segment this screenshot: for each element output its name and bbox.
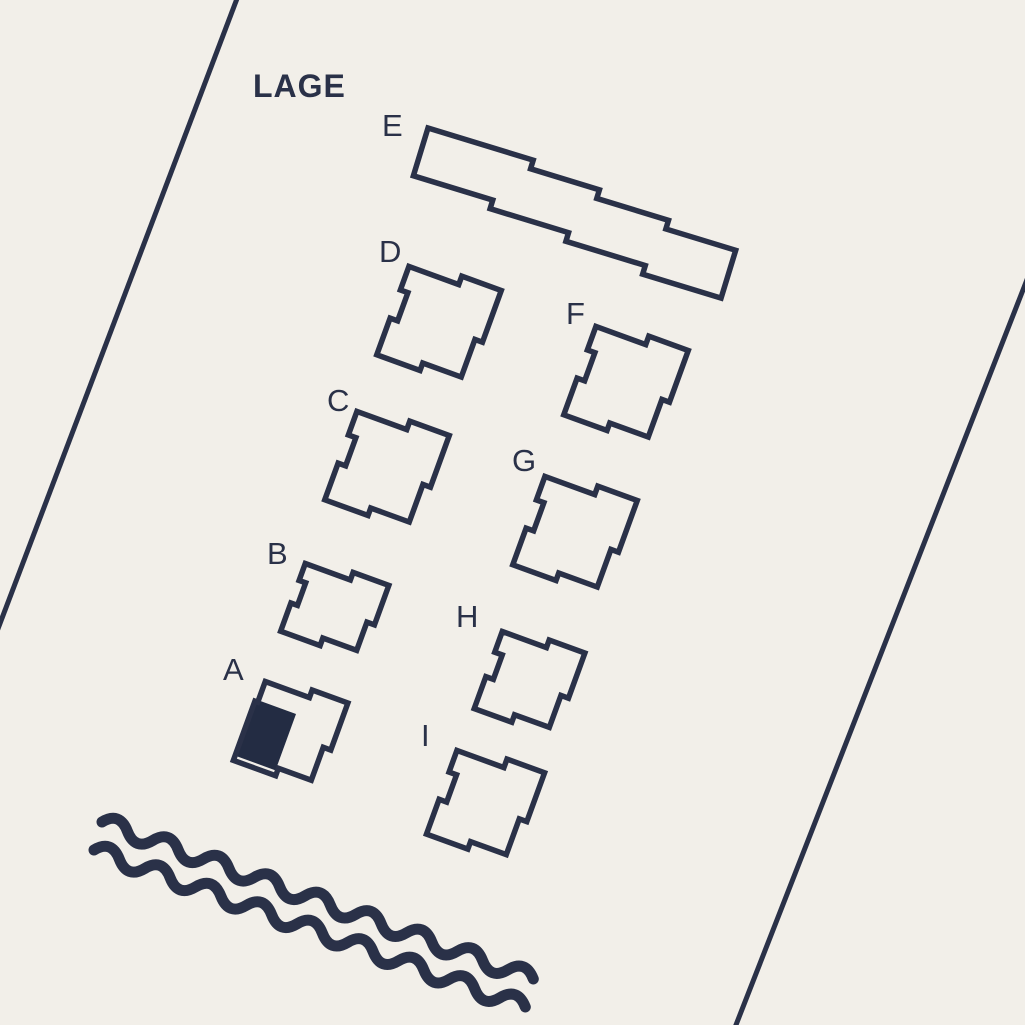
boundary-line-left	[0, 0, 238, 634]
page-title: LAGE	[253, 70, 346, 102]
buildings	[233, 128, 743, 865]
building-h-outline	[474, 624, 585, 738]
site-plan: LAGE E D F C G B H A I	[0, 0, 1025, 1025]
building-c-outline	[325, 403, 449, 532]
building-b[interactable]	[281, 556, 389, 661]
building-a[interactable]	[233, 673, 348, 790]
building-label-d: D	[379, 236, 401, 267]
boundary-line-right	[734, 272, 1025, 1025]
wave-line-lower	[91, 842, 528, 1014]
building-i-outline	[426, 742, 544, 865]
building-f[interactable]	[564, 318, 688, 447]
building-label-b: B	[267, 538, 288, 569]
building-e[interactable]	[405, 128, 743, 298]
building-i[interactable]	[426, 742, 544, 865]
building-label-e: E	[382, 110, 403, 141]
building-g[interactable]	[513, 468, 637, 597]
building-c[interactable]	[325, 403, 449, 532]
building-label-h: H	[456, 601, 478, 632]
site-plan-drawing	[0, 0, 1025, 1025]
building-g-outline	[513, 468, 637, 597]
building-d-outline	[377, 258, 501, 387]
building-e-outline	[405, 128, 743, 298]
building-b-outline	[281, 556, 389, 661]
building-label-c: C	[327, 385, 349, 416]
building-label-g: G	[512, 445, 536, 476]
building-d[interactable]	[377, 258, 501, 387]
building-label-i: I	[421, 720, 430, 751]
building-label-a: A	[223, 654, 244, 685]
building-h[interactable]	[474, 624, 585, 738]
building-label-f: F	[566, 298, 585, 329]
building-f-outline	[564, 318, 688, 447]
